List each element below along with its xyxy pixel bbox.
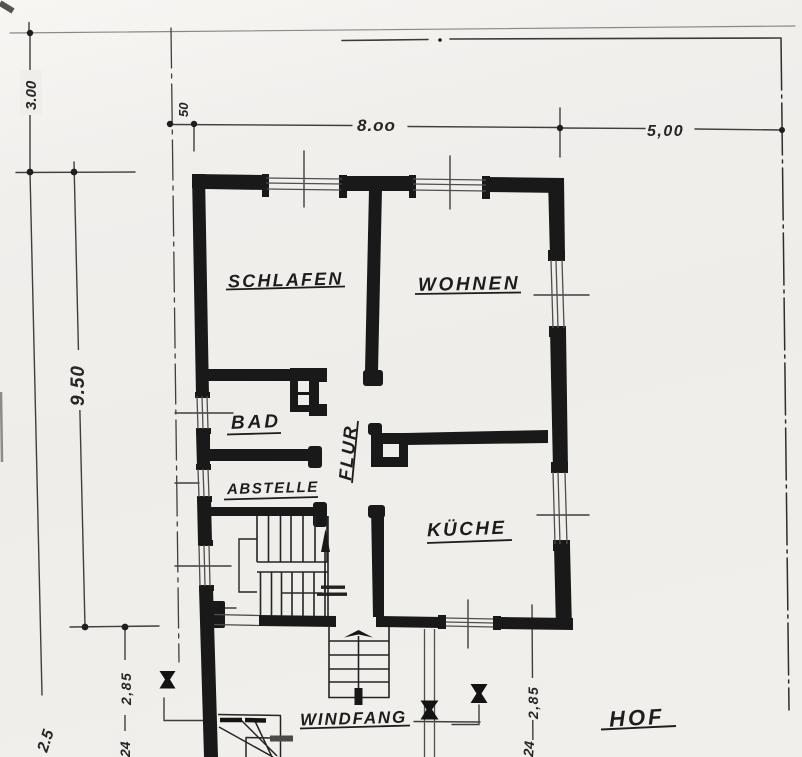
svg-text:KÜCHE: KÜCHE [427, 518, 507, 542]
svg-text:3.00: 3.00 [23, 80, 40, 110]
svg-text:BAD: BAD [231, 411, 282, 434]
svg-text:2,85: 2,85 [118, 672, 134, 706]
svg-text:5,00: 5,00 [647, 123, 684, 140]
svg-text:2,85: 2,85 [525, 686, 541, 720]
svg-text:8.oo: 8.oo [357, 116, 396, 135]
svg-text:24: 24 [520, 740, 537, 757]
svg-text:50: 50 [176, 102, 191, 117]
svg-text:9.50: 9.50 [68, 365, 89, 406]
svg-text:24: 24 [117, 741, 133, 757]
svg-text:ABSTELLE: ABSTELLE [226, 479, 319, 498]
